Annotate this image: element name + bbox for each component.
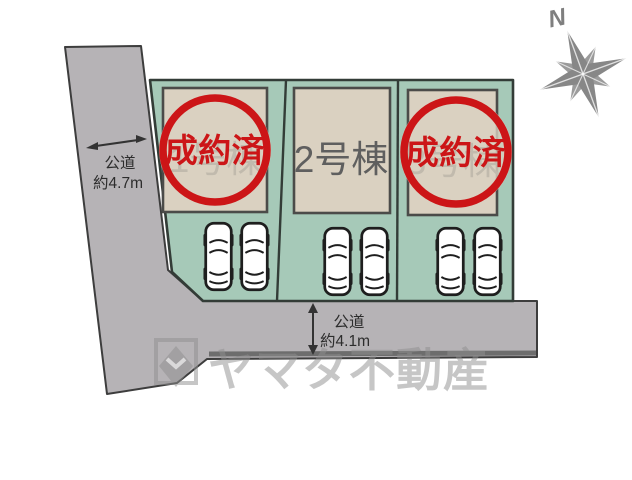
car-icon: [359, 228, 389, 295]
car-icon: [239, 223, 269, 290]
sold-stamp-lot-3: 成約済: [400, 96, 512, 208]
car-icon: [435, 228, 465, 295]
car-icon: [322, 228, 352, 295]
plot-map: 1号棟 2号棟 3号棟 成約済: [0, 0, 632, 480]
stamp-text: 成約済: [165, 132, 266, 169]
left-road-width-label: 約4.7m: [93, 174, 143, 192]
sold-stamp-lot-1: 成約済: [159, 94, 271, 206]
car-icon: [203, 223, 233, 290]
bottom-road-type-label: 公道: [333, 313, 364, 331]
compass-north-label: N: [546, 3, 569, 33]
compass-facet-line: [556, 47, 610, 101]
compass-main-points: [524, 15, 632, 133]
watermark-company-text: ヤマタ不動産: [208, 344, 490, 396]
left-road-type-label: 公道: [104, 154, 135, 172]
stamp-text: 成約済: [406, 134, 507, 171]
lot-divider-2-3: [397, 80, 398, 301]
lot-2-label: 2号棟: [294, 139, 389, 180]
car-icon: [472, 228, 502, 295]
plot-map-drawing: 1号棟 2号棟 3号棟 成約済: [0, 0, 632, 480]
compass-rose-icon: N: [524, 3, 632, 133]
lot-2: 2号棟: [294, 88, 390, 213]
bottom-road-width-label: 約4.1m: [320, 332, 370, 350]
